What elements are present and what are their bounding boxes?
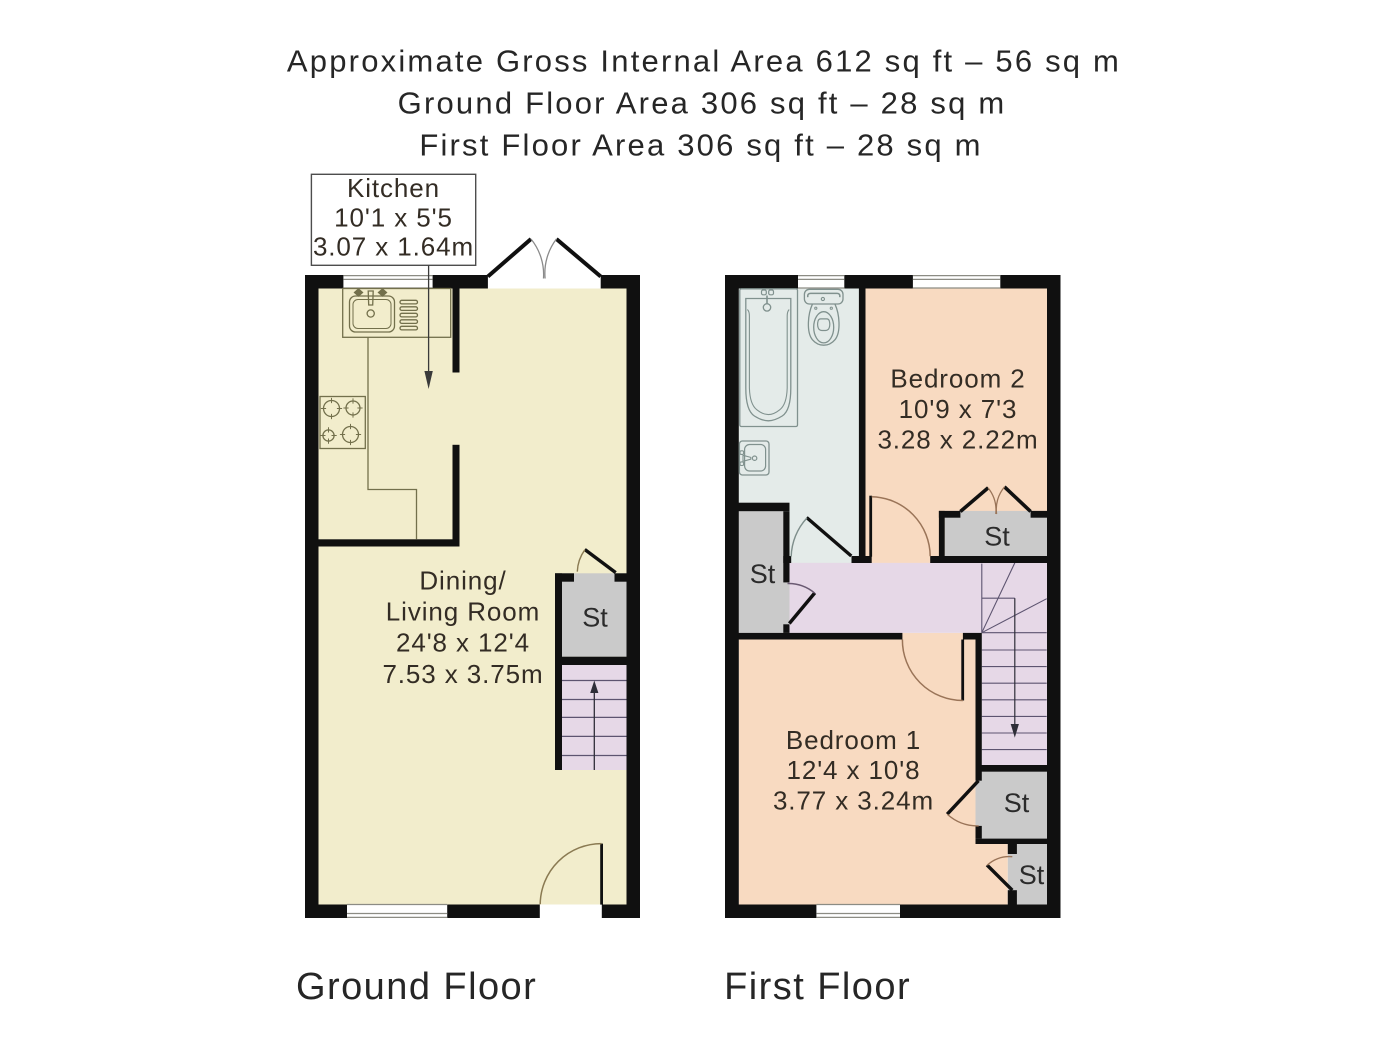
svg-text:12'4 x 10'8: 12'4 x 10'8 (786, 755, 920, 785)
svg-text:St: St (1004, 788, 1030, 818)
svg-text:Kitchen: Kitchen (347, 173, 440, 203)
svg-text:St: St (984, 522, 1010, 552)
svg-text:10'9 x 7'3: 10'9 x 7'3 (899, 394, 1018, 424)
svg-text:7.53 x 3.75m: 7.53 x 3.75m (382, 659, 543, 689)
svg-text:St: St (582, 603, 608, 633)
svg-text:Living Room: Living Room (386, 597, 540, 627)
svg-text:24'8 x 12'4: 24'8 x 12'4 (396, 628, 530, 658)
svg-text:10'1 x 5'5: 10'1 x 5'5 (334, 202, 453, 232)
svg-text:First Floor: First Floor (724, 966, 911, 1008)
svg-text:Ground Floor Area 306 sq ft –: Ground Floor Area 306 sq ft – 28 sq m (398, 86, 1007, 121)
svg-text:3.28 x 2.22m: 3.28 x 2.22m (877, 425, 1038, 455)
svg-text:Ground Floor: Ground Floor (296, 966, 537, 1008)
svg-text:Approximate Gross Internal Are: Approximate Gross Internal Area 612 sq f… (287, 44, 1121, 79)
svg-text:First Floor Area 306 sq ft – 2: First Floor Area 306 sq ft – 28 sq m (419, 128, 982, 163)
svg-text:Dining/: Dining/ (419, 566, 506, 596)
svg-text:St: St (750, 559, 776, 589)
svg-text:Bedroom 2: Bedroom 2 (890, 364, 1025, 394)
svg-text:Bedroom 1: Bedroom 1 (786, 725, 921, 755)
svg-text:3.07 x 1.64m: 3.07 x 1.64m (313, 231, 474, 261)
svg-text:3.77 x 3.24m: 3.77 x 3.24m (773, 786, 934, 816)
svg-text:St: St (1019, 860, 1045, 890)
